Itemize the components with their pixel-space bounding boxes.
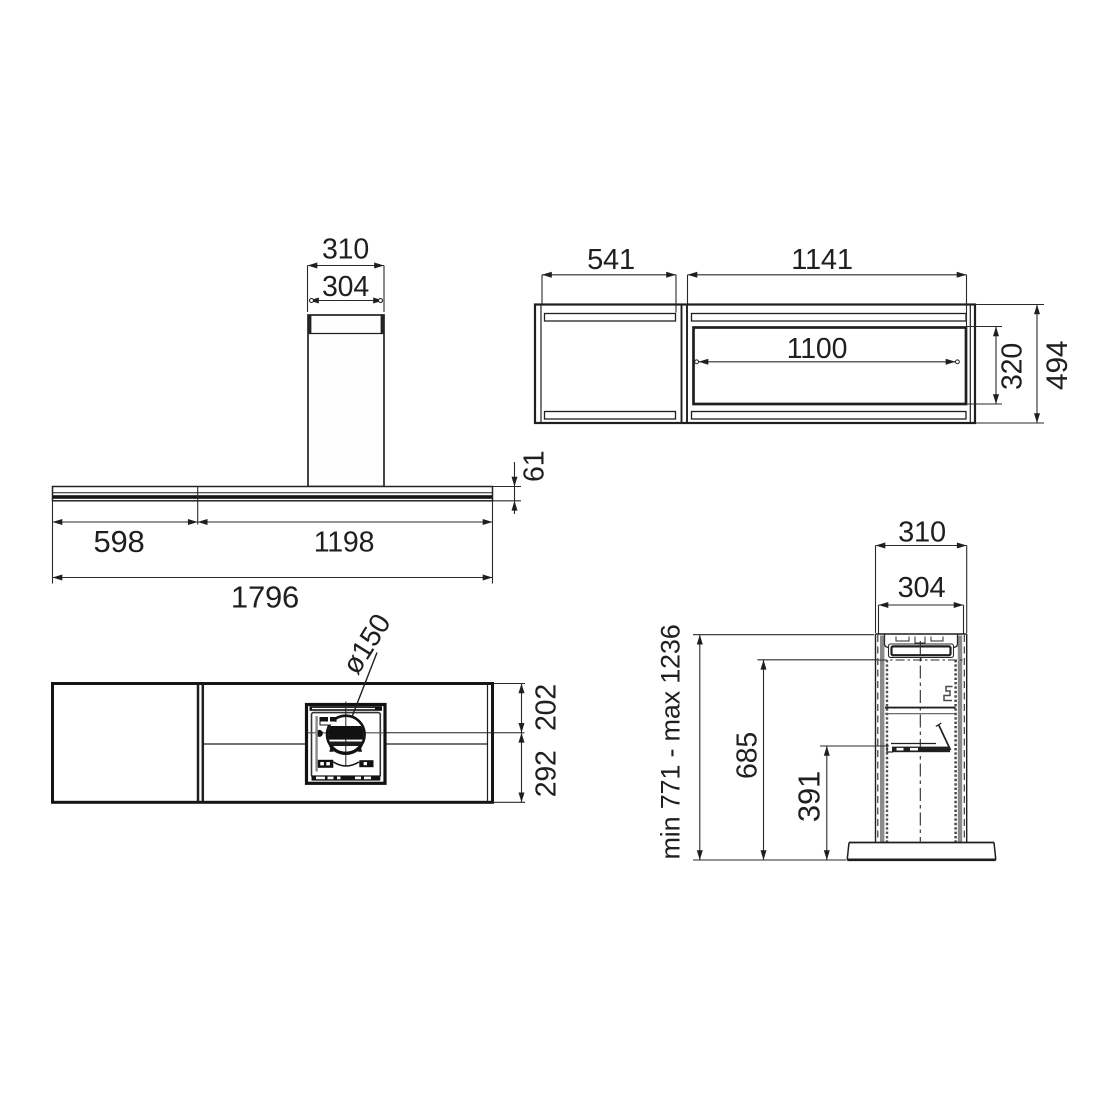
svg-text:min 771 - max 1236: min 771 - max 1236 [656,624,686,859]
svg-text:391: 391 [792,771,827,822]
svg-text:320: 320 [997,343,1029,390]
svg-text:310: 310 [898,516,946,548]
svg-text:61: 61 [519,451,551,482]
svg-text:304: 304 [322,271,369,303]
svg-text:202: 202 [531,684,563,731]
svg-text:685: 685 [732,732,764,779]
svg-text:304: 304 [898,572,946,604]
svg-text:1198: 1198 [314,527,375,559]
svg-text:292: 292 [531,750,563,797]
svg-text:1100: 1100 [787,333,848,365]
svg-text:1141: 1141 [791,244,853,276]
svg-text:541: 541 [587,244,635,276]
svg-text:598: 598 [93,524,144,559]
svg-text:1796: 1796 [231,580,299,615]
svg-text:310: 310 [322,234,369,266]
svg-text:494: 494 [1041,341,1074,390]
